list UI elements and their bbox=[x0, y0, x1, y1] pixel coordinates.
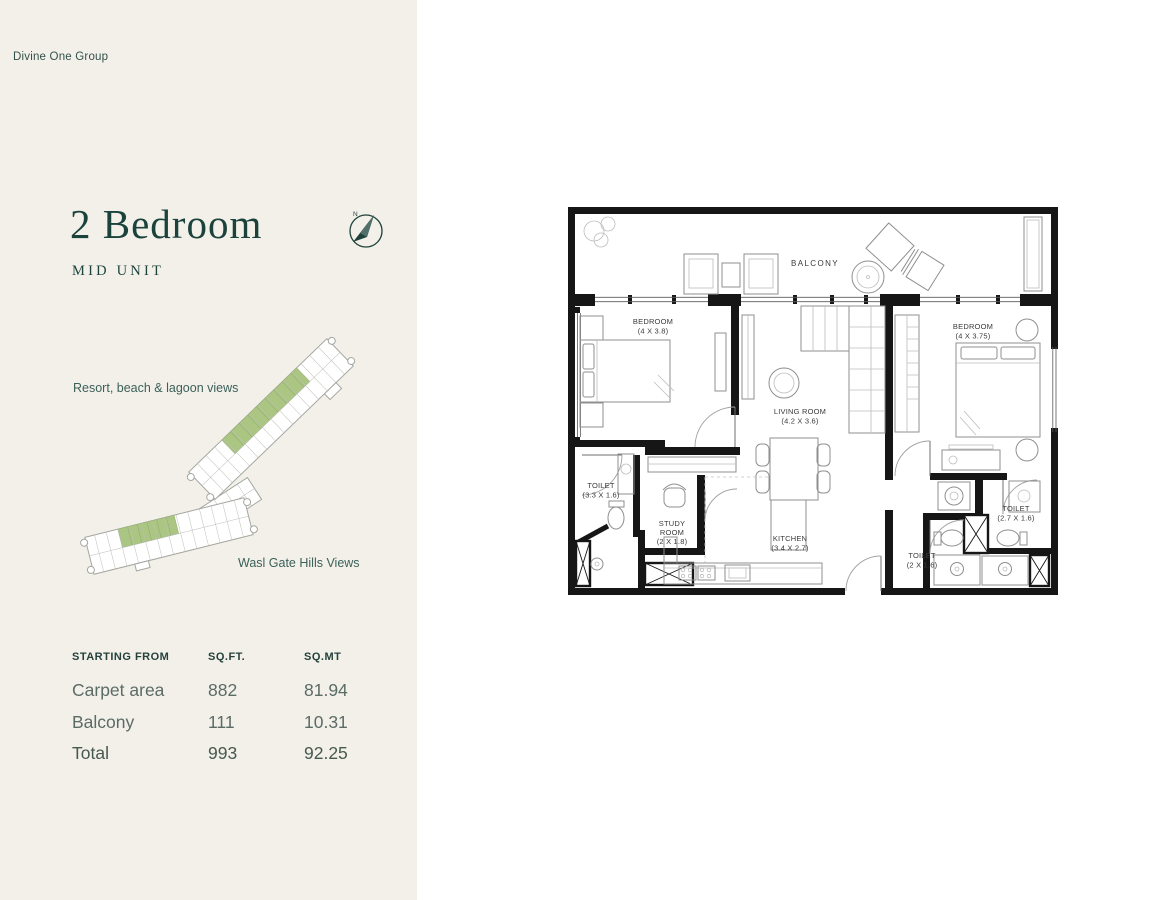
table-row-balcony: Balcony 111 10.31 bbox=[72, 712, 382, 732]
row-sqft: 993 bbox=[208, 743, 304, 763]
col-sqft: SQ.FT. bbox=[208, 651, 304, 663]
svg-text:(2 X 1.6): (2 X 1.6) bbox=[907, 561, 938, 570]
col-starting-from: STARTING FROM bbox=[72, 651, 208, 663]
row-label: Balcony bbox=[72, 712, 208, 732]
svg-text:(4 X 3.8): (4 X 3.8) bbox=[638, 327, 669, 336]
room-label-toilet-1: TOILET bbox=[587, 481, 615, 490]
left-panel: Divine One Group 2 Bedroom MID UNIT N bbox=[0, 0, 417, 900]
area-table-header: STARTING FROM SQ.FT. SQ.MT bbox=[72, 651, 382, 663]
room-label-bedroom-1: BEDROOM bbox=[633, 317, 673, 326]
room-label-kitchen: KITCHEN bbox=[773, 534, 807, 543]
row-label: Total bbox=[72, 743, 208, 763]
svg-text:(3.3 X 1.6): (3.3 X 1.6) bbox=[582, 491, 620, 500]
svg-text:ROOM: ROOM bbox=[660, 528, 684, 537]
room-label-study-room: STUDY bbox=[659, 519, 685, 528]
unit-subtitle: MID UNIT bbox=[72, 263, 164, 280]
row-sqmt: 10.31 bbox=[304, 712, 382, 732]
page-root: Divine One Group 2 Bedroom MID UNIT N bbox=[0, 0, 1166, 900]
floorplan: BALCONY BEDROOM (4 X 3.8) BEDROOM (4 X 3… bbox=[568, 207, 1058, 595]
view-label-top: Resort, beach & lagoon views bbox=[73, 381, 238, 395]
room-label-toilet-2: TOILET bbox=[1002, 504, 1030, 513]
svg-text:(2.7 X 1.6): (2.7 X 1.6) bbox=[997, 514, 1035, 523]
furniture-toilet-1 bbox=[591, 454, 634, 570]
furniture-study bbox=[648, 457, 736, 507]
table-row-total: Total 993 92.25 bbox=[72, 743, 382, 763]
furniture-balcony bbox=[584, 217, 1042, 294]
room-label-bedroom-2: BEDROOM bbox=[953, 322, 993, 331]
area-table: STARTING FROM SQ.FT. SQ.MT Carpet area 8… bbox=[72, 651, 382, 775]
table-row-carpet-area: Carpet area 882 81.94 bbox=[72, 680, 382, 700]
site-wing-lower bbox=[80, 496, 261, 582]
svg-text:(4 X 3.75): (4 X 3.75) bbox=[956, 332, 991, 341]
row-sqmt: 81.94 bbox=[304, 680, 382, 700]
row-sqft: 882 bbox=[208, 680, 304, 700]
row-sqft: 111 bbox=[208, 712, 304, 732]
site-wing-upper bbox=[185, 335, 362, 509]
brand-text: Divine One Group bbox=[13, 51, 108, 63]
svg-text:(2 X 1.8): (2 X 1.8) bbox=[657, 537, 688, 546]
row-label: Carpet area bbox=[72, 680, 208, 700]
room-label-balcony: BALCONY bbox=[791, 259, 839, 268]
view-label-bottom: Wasl Gate Hills Views bbox=[238, 556, 360, 570]
row-sqmt: 92.25 bbox=[304, 743, 382, 763]
compass-north-label: N bbox=[353, 211, 358, 218]
svg-text:(4.2 X 3.6): (4.2 X 3.6) bbox=[781, 417, 819, 426]
room-label-toilet-3: TOILET bbox=[908, 551, 936, 560]
svg-text:(3.4 X 2.7): (3.4 X 2.7) bbox=[771, 544, 809, 553]
compass-icon: N bbox=[344, 206, 388, 252]
page-title: 2 Bedroom bbox=[70, 200, 262, 248]
col-sqmt: SQ.MT bbox=[304, 651, 382, 663]
room-label-living-room: LIVING ROOM bbox=[774, 407, 826, 416]
